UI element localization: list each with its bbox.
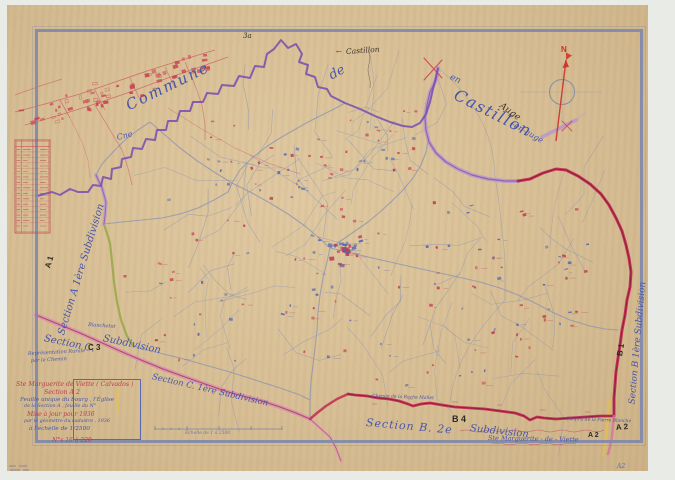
- cartouche-feuille: Feuille unique du bourg , l'Église: [20, 398, 114, 404]
- margin-a2-mark: A2: [617, 464, 625, 470]
- section-b-stamp: B 4: [452, 415, 466, 424]
- cartouche-numbers: N°s 16 à 220: [52, 438, 92, 444]
- road-network-grey: [96, 48, 618, 419]
- village-roads-red: [15, 50, 300, 185]
- cartouche-echelle: à l'échelle de 1/2500: [29, 427, 90, 433]
- scanned-cadastral-map: Commune de en Castillon -en-auge ← Casti…: [0, 0, 675, 480]
- section-c-stamp: C 3: [88, 344, 100, 352]
- cartouche-detail2: par le géomètre du cadastre , 1936: [24, 420, 110, 425]
- cartouche-section: Section A 2: [44, 390, 80, 396]
- ste-marguerite-edge-stamp: A 2: [588, 432, 599, 439]
- scale-caption: Échelle de 1 à 2500: [185, 432, 230, 437]
- compass-north-label: N: [561, 46, 567, 54]
- ste-marguerite-edge-label: Ste Marguerite - de - Viette: [488, 435, 579, 443]
- cartouche-detail1: de la Section A , feuille du N°: [24, 405, 96, 410]
- castillon-arrow: ←: [336, 49, 342, 56]
- cartouche-commune-name: Ste Marguerite de Viette ( Calvados ): [16, 382, 133, 388]
- road-crimson-east: [518, 169, 631, 416]
- mark-3a: 3a: [243, 33, 252, 40]
- scale-bar: [155, 426, 282, 430]
- cartouche-mise-a-jour: Mise à jour pour 1936: [27, 412, 95, 418]
